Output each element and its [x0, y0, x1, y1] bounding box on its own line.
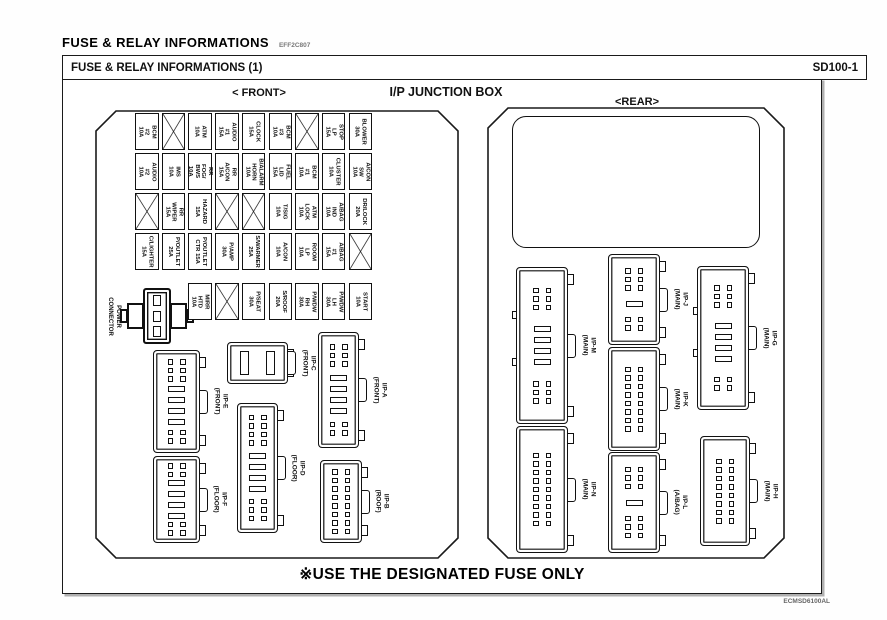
connector-tab: [659, 327, 666, 338]
connector-ip-k: [608, 347, 660, 451]
connector-pin: [625, 409, 631, 415]
connector-pin: [625, 533, 631, 539]
pin-grid: [714, 377, 732, 391]
fuse-label: BLOWER 30A: [354, 118, 367, 144]
connector-pin: [261, 423, 267, 429]
pin-grid: [168, 430, 186, 444]
connector-tab: [361, 490, 370, 514]
connector-slot: [168, 419, 185, 425]
connector-pin: [638, 516, 644, 522]
connector-pin: [638, 384, 644, 390]
front-section-label: < FRONT>: [213, 87, 305, 99]
fuse-cell: B/ALARM HORN 10A: [242, 153, 266, 190]
fuse-label: AUDIO #2 10A: [137, 161, 157, 183]
connector-tab: [749, 443, 756, 454]
connector-ip-a: [318, 332, 359, 448]
fuse-cell: RR WIPER 15A: [162, 193, 186, 230]
slot-column: [626, 298, 643, 309]
connector-label-ip-j: I/P-J (MAIN): [669, 254, 691, 345]
connector-label-ip-l: I/P-L (A/BAG): [669, 452, 691, 553]
connector-pin: [249, 432, 255, 438]
connector-pin: [638, 484, 644, 490]
connector-ip-j: [608, 254, 660, 345]
fuse-label: RR A/CON 15A: [217, 161, 237, 183]
connector-pin: [625, 516, 631, 522]
connector-pin: [168, 430, 174, 436]
connector-pin: [533, 470, 539, 476]
fuse-cell: BLOWER 30A: [349, 113, 373, 150]
connector-pin: [714, 302, 720, 308]
connector-pin: [625, 426, 631, 432]
connector-pin: [716, 510, 722, 516]
connector-pin: [330, 422, 336, 428]
connector-pin: [180, 359, 186, 365]
connector-ip-l: [608, 452, 660, 553]
connector-pin: [729, 467, 735, 473]
connector-tab: [749, 528, 756, 539]
fuse-cell: BCM #3 10A: [269, 113, 293, 150]
fuse-label: BCM #2 10A: [137, 121, 157, 143]
connector-pin: [625, 325, 631, 331]
connector-pin: [546, 461, 552, 467]
power-connector-left-tab: [127, 303, 144, 329]
fuse-label: DR/LOCK 20A: [354, 198, 367, 225]
connector-pin: [638, 268, 644, 274]
fuse-label: S/WARMER 25A: [247, 235, 260, 267]
connector-pin: [168, 359, 174, 365]
connector-pin: [330, 344, 336, 350]
fuse-label: START 10A: [354, 291, 367, 313]
fuse-cell: P/WDW LH 30A: [322, 283, 346, 320]
fuse-cell: CLUSTER 10A: [322, 153, 346, 190]
connector-pin: [249, 507, 255, 513]
fuse-label: ATM LOCK 10A: [297, 201, 317, 223]
slot-column: [626, 497, 643, 508]
connector-tab: [361, 525, 368, 536]
connector-label-text: I/P-F (FLOOR): [212, 486, 228, 513]
slot-column: [168, 478, 185, 522]
connector-tab: [567, 535, 574, 546]
connector-ip-d: [237, 403, 278, 533]
pin-grid: [625, 467, 643, 490]
connector-pin: [546, 390, 552, 396]
connector-pin: [546, 504, 552, 510]
connector-pin: [342, 422, 348, 428]
fuse-cell: AUDIO #1 15A: [215, 113, 239, 150]
footer-code: ECMSD6100AL: [640, 598, 830, 605]
connector-label-text: I/P-J (MAIN): [672, 289, 688, 310]
connector-slot: [330, 375, 347, 381]
connector-ip-h: [700, 436, 750, 546]
pin-grid: [249, 499, 267, 522]
connector-pin: [180, 368, 186, 374]
connector-slot: [266, 351, 275, 375]
connector-slot: [715, 323, 732, 329]
connector-pin: [330, 361, 336, 367]
fuse-cell-empty: [162, 113, 186, 150]
power-connector-slot: [153, 311, 161, 322]
fuse-cell: RR FOG/ BWS 10A: [188, 153, 212, 190]
pin-grid: [625, 516, 643, 539]
connector-nub: [512, 311, 517, 319]
connector-tab: [659, 261, 666, 272]
fuse-label: T/SIG 10A: [274, 201, 287, 223]
fuse-cell: BCM #2 10A: [135, 113, 159, 150]
connector-pin: [625, 467, 631, 473]
document-code: EFF2C807: [279, 42, 310, 49]
connector-pin: [714, 285, 720, 291]
connector-pin: [533, 521, 539, 527]
pin-grid: [714, 285, 732, 308]
connector-ip-g: [697, 266, 749, 410]
connector-pin: [533, 381, 539, 387]
connector-slot: [626, 301, 643, 307]
fuse-label: STOP LP 15A: [324, 121, 344, 143]
fuse-cell: P/SEAT 30A: [242, 283, 266, 320]
connector-tab: [358, 378, 367, 402]
connector-pin: [168, 376, 174, 382]
connector-pin: [261, 440, 267, 446]
slot-column: [249, 450, 266, 494]
connector-slot: [168, 480, 185, 486]
connector-slot: [330, 386, 347, 392]
fuse-cell-empty: [295, 113, 319, 150]
connector-pin: [716, 459, 722, 465]
connector-pin: [714, 385, 720, 391]
connector-pin: [625, 392, 631, 398]
connector-pin: [716, 476, 722, 482]
connector-slot: [330, 397, 347, 403]
connector-slot: [240, 351, 249, 375]
connector-tab: [287, 351, 296, 375]
fuse-cell: P/WDW RH 30A: [295, 283, 319, 320]
connector-tab: [748, 326, 757, 350]
connector-pin: [533, 398, 539, 404]
fuse-cell: BCM #1 10A: [295, 153, 319, 190]
connector-pin: [546, 305, 552, 311]
connector-nub: [693, 307, 698, 315]
connector-tab: [567, 433, 574, 444]
connector-label-ip-d: I/P-D (FLOOR): [287, 403, 309, 533]
fuse-label: P/SEAT 30A: [247, 291, 260, 313]
fuse-cell: ROOM LP 10A: [295, 233, 319, 270]
connector-pin: [168, 438, 174, 444]
connector-pin: [342, 430, 348, 436]
connector-pin: [345, 503, 351, 509]
connector-pin: [638, 409, 644, 415]
connector-pin: [729, 484, 735, 490]
fuse-label: P/AMP 30A: [220, 241, 233, 263]
fuse-label: A/BAG #1 15A: [324, 241, 344, 263]
connector-pin: [332, 486, 338, 492]
pin-grid: [625, 367, 643, 432]
connector-tab: [277, 456, 286, 480]
connector-tab: [199, 435, 206, 446]
connector-pin: [729, 459, 735, 465]
document-header: FUSE & RELAY INFORMATIONSEFF2C807: [62, 34, 310, 52]
connector-label-ip-h: I/P-H (MAIN): [759, 436, 781, 546]
connector-pin: [330, 430, 336, 436]
connector-slot: [715, 334, 732, 340]
fuse-cell: DR/LOCK 20A: [349, 193, 373, 230]
document-title: FUSE & RELAY INFORMATIONS: [62, 35, 269, 50]
connector-label-text: I/P-L (A/BAG): [672, 490, 688, 515]
connector-pin: [638, 392, 644, 398]
fuse-cell: ATM 10A: [188, 113, 212, 150]
connector-pin: [332, 469, 338, 475]
fuse-cell-empty: [349, 233, 373, 270]
panel-page-code: SD100-1: [813, 62, 858, 74]
connector-tab: [199, 525, 206, 536]
slot-column: [715, 320, 732, 364]
rear-section-label: <REAR>: [606, 96, 668, 108]
connector-tab: [199, 390, 208, 414]
connector-slot: [249, 486, 266, 492]
fuse-label: RR WIPER 15A: [164, 201, 184, 223]
connector-pin: [249, 423, 255, 429]
connector-pin: [638, 426, 644, 432]
connector-pin: [546, 453, 552, 459]
connector-tab: [567, 478, 576, 502]
connector-label-ip-c: I/P-C (FRONT): [297, 342, 319, 384]
connector-pin: [533, 504, 539, 510]
connector-pin: [638, 285, 644, 291]
connector-label-text: I/P-N (MAIN): [580, 479, 596, 500]
connector-pin: [714, 377, 720, 383]
connector-pin: [638, 277, 644, 283]
connector-pin: [546, 512, 552, 518]
connector-slot: [534, 348, 551, 354]
connector-pin: [546, 296, 552, 302]
connector-tab: [567, 274, 574, 285]
connector-pin: [716, 467, 722, 473]
connector-pin: [625, 285, 631, 291]
connector-label-text: I/P-K (MAIN): [672, 389, 688, 410]
connector-slot: [534, 326, 551, 332]
connector-pin: [342, 344, 348, 350]
fuse-label: ROOM LP 10A: [297, 241, 317, 263]
connector-pin: [332, 512, 338, 518]
connector-pin: [345, 512, 351, 518]
fuse-cell: STOP LP 15A: [322, 113, 346, 150]
connector-label-ip-a: I/P-A (FRONT): [368, 332, 390, 448]
connector-label-ip-g: I/P-G (MAIN): [758, 266, 780, 410]
fuse-cell: MIRR HTD 10A: [188, 283, 212, 320]
connector-slot: [168, 408, 185, 414]
connector-slot: [168, 386, 185, 392]
connector-ip-n: [516, 426, 568, 553]
connector-pin: [546, 478, 552, 484]
connector-pin: [727, 285, 733, 291]
fuse-label: S/ROOF 20A: [274, 290, 287, 313]
connector-pin: [345, 478, 351, 484]
pin-grid: [332, 469, 350, 534]
fuse-label: AUDIO #1 15A: [217, 121, 237, 143]
connector-tab: [361, 467, 368, 478]
connector-pin: [729, 501, 735, 507]
connector-pin: [638, 475, 644, 481]
fuse-label: ATM 10A: [194, 121, 207, 143]
connector-slot: [249, 453, 266, 459]
connector-pin: [342, 361, 348, 367]
connector-pin: [716, 501, 722, 507]
connector-pin: [625, 384, 631, 390]
connector-pin: [625, 475, 631, 481]
connector-pin: [261, 499, 267, 505]
connector-label-text: I/P-G (MAIN): [761, 328, 777, 349]
connector-pin: [345, 469, 351, 475]
fuse-cell: S/WARMER 25A: [242, 233, 266, 270]
connector-pin: [546, 470, 552, 476]
connector-pin: [332, 503, 338, 509]
fuse-label: B/ALARM HORN 10A: [244, 158, 264, 185]
connector-pin: [727, 385, 733, 391]
connector-label-text: I/P-A (FRONT): [371, 377, 387, 404]
panel-title-bar: FUSE & RELAY INFORMATIONS (1) SD100-1: [62, 55, 867, 80]
connector-slot: [626, 500, 643, 506]
fuse-cell: C/LIGHTER 15A: [135, 233, 159, 270]
connector-label-text: I/P-D (FLOOR): [290, 454, 306, 481]
connector-pin: [546, 381, 552, 387]
manual-page: FUSE & RELAY INFORMATIONSEFF2C807 FUSE &…: [0, 0, 887, 620]
connector-pin: [533, 296, 539, 302]
connector-tab: [567, 406, 574, 417]
connector-tab: [748, 392, 755, 403]
fuse-cell: S/ROOF 20A: [269, 283, 293, 320]
power-connector: [143, 288, 171, 344]
connector-slot: [715, 356, 732, 362]
fuse-cell-empty: [135, 193, 159, 230]
fuse-label: A/CON 10A: [274, 241, 287, 263]
connector-pin: [638, 317, 644, 323]
connector-pin: [533, 487, 539, 493]
connector-slot: [168, 397, 185, 403]
connector-pin: [261, 507, 267, 513]
relay-cover-plate: [512, 116, 760, 248]
connector-pin: [729, 493, 735, 499]
connector-tab: [358, 339, 365, 350]
connector-pin: [249, 440, 255, 446]
connector-pin: [729, 476, 735, 482]
fuse-cell: A/CON 10A: [269, 233, 293, 270]
connector-pin: [261, 516, 267, 522]
connector-tab: [199, 488, 208, 512]
connector-pin: [168, 530, 174, 536]
connector-pin: [716, 493, 722, 499]
connector-pin: [625, 524, 631, 530]
connector-label-ip-m: I/P-M (MAIN): [577, 267, 599, 424]
connector-pin: [638, 533, 644, 539]
pin-grid: [533, 453, 551, 527]
fuse-label: MIRR HTD 10A: [190, 291, 210, 313]
connector-pin: [533, 461, 539, 467]
connector-pin: [729, 518, 735, 524]
fuse-cell: P/OUTLET 25A: [162, 233, 186, 270]
fuse-label: P/OUTLET 25A: [167, 237, 180, 266]
connector-pin: [638, 418, 644, 424]
fuse-cell-empty: [215, 193, 239, 230]
connector-slot: [168, 491, 185, 497]
connector-label-text: I/P-C (FRONT): [300, 350, 316, 377]
fuse-cell: CLOCK 15A: [242, 113, 266, 150]
connector-pin: [249, 415, 255, 421]
connector-slot: [168, 513, 185, 519]
fuse-cell: T/SIG 10A: [269, 193, 293, 230]
fuse-cell: A/BAG #1 15A: [322, 233, 346, 270]
connector-pin: [332, 478, 338, 484]
power-connector-slot: [153, 326, 161, 337]
connector-pin: [638, 367, 644, 373]
connector-tab: [659, 459, 666, 470]
connector-pin: [638, 467, 644, 473]
connector-tab: [277, 410, 284, 421]
connector-slot: [534, 337, 551, 343]
connector-pin: [546, 521, 552, 527]
connector-pin: [533, 512, 539, 518]
fuse-label: A/CON SW 10A: [350, 161, 370, 183]
connector-label-text: I/P-E (FRONT): [212, 388, 228, 415]
panel-title: FUSE & RELAY INFORMATIONS (1): [71, 62, 262, 74]
connector-pin: [345, 495, 351, 501]
connector-tab: [749, 479, 758, 503]
connector-pin: [625, 277, 631, 283]
pin-grid: [533, 381, 551, 404]
pin-grid: [330, 344, 348, 367]
connector-ip-b: [320, 460, 362, 543]
connector-tab: [659, 387, 668, 411]
connector-label-ip-n: I/P-N (MAIN): [577, 426, 599, 553]
fuse-cell: P/AMP 30A: [215, 233, 239, 270]
fuse-cell: FUEL LID 15A: [269, 153, 293, 190]
pin-grid: [330, 422, 348, 436]
connector-slot: [249, 464, 266, 470]
connector-tab: [659, 433, 666, 444]
fuse-cell: P/OUTLET CTR 15A: [188, 233, 212, 270]
fuse-cell: HAZARD 15A: [188, 193, 212, 230]
fuse-label: HAZARD 15A: [194, 199, 207, 224]
pin-grid: [168, 359, 186, 382]
fuse-label: P/OUTLET CTR 15A: [194, 237, 207, 266]
connector-pin: [533, 495, 539, 501]
power-connector-right-tab: [170, 303, 187, 329]
connector-ip-e: [153, 350, 200, 453]
fuse-label: IMS 10A: [167, 161, 180, 183]
connector-ip-m: [516, 267, 568, 424]
fuse-label: CLUSTER 10A: [327, 158, 340, 186]
connector-slot: [534, 359, 551, 365]
connector-pin: [180, 376, 186, 382]
junction-box-label: I/P JUNCTION BOX: [383, 85, 509, 99]
connector-tab: [659, 288, 668, 312]
connector-pin: [729, 510, 735, 516]
pin-grid: [716, 459, 734, 524]
pin-grid: [249, 415, 267, 446]
connector-pin: [716, 484, 722, 490]
fuse-label: BCM #3 10A: [270, 121, 290, 143]
connector-pin: [261, 432, 267, 438]
connector-pin: [625, 367, 631, 373]
fuse-label: A/BAG IND 10A: [324, 201, 344, 223]
pin-grid: [625, 317, 643, 331]
connector-pin: [168, 368, 174, 374]
connector-label-ip-k: I/P-K (MAIN): [669, 347, 691, 451]
connector-tab: [659, 354, 666, 365]
connector-pin: [727, 377, 733, 383]
connector-pin: [332, 495, 338, 501]
connector-pin: [716, 518, 722, 524]
connector-tab: [199, 357, 206, 368]
connector-pin: [180, 522, 186, 528]
